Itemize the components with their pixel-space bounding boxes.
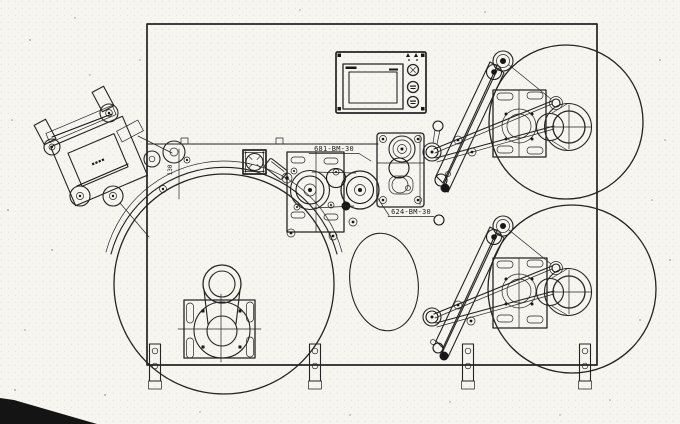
engineering-drawing-canvas: ▪▪▪▪ 681-BM-30: [0, 0, 680, 424]
paper-texture: [0, 0, 680, 424]
dimension-130: 130: [167, 164, 174, 175]
part-label-lower: 624-BM-30: [391, 208, 431, 216]
hmi-brand-mark: [346, 67, 357, 70]
part-label-upper: 681-BM-30: [314, 145, 354, 153]
hmi-model-mark: [389, 69, 398, 71]
scanned-drawing-page: ▪▪▪▪ 681-BM-30: [0, 0, 680, 424]
